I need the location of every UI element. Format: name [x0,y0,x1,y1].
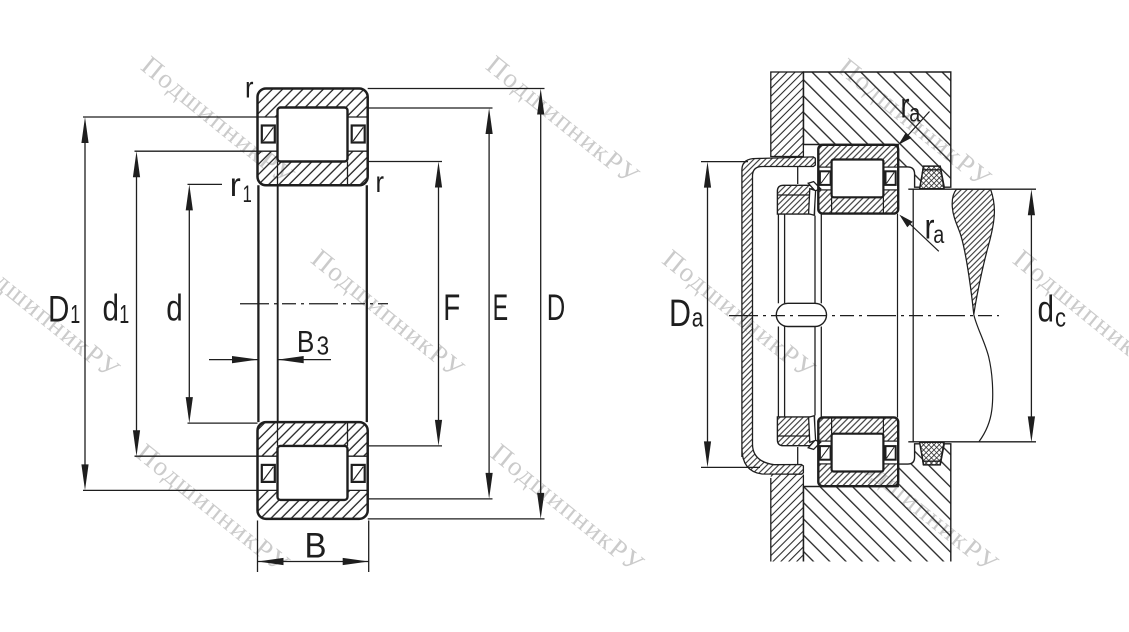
svg-text:d: d [1038,289,1055,330]
svg-text:E: E [493,287,509,328]
svg-text:F: F [443,287,460,328]
svg-text:a: a [692,303,704,333]
svg-text:3: 3 [317,331,330,361]
svg-text:B: B [297,324,315,359]
svg-text:1: 1 [70,299,80,329]
svg-text:a: a [933,221,944,249]
svg-text:d: d [103,288,120,329]
svg-text:a: a [909,100,920,128]
svg-text:r: r [230,166,241,203]
svg-text:D: D [48,288,69,329]
svg-text:r: r [376,166,385,199]
svg-text:B: B [305,527,327,566]
svg-text:d: d [166,288,183,329]
svg-text:r: r [245,72,254,105]
svg-text:1: 1 [243,181,252,208]
svg-text:1: 1 [119,299,129,329]
svg-text:D: D [547,287,566,328]
svg-text:c: c [1055,303,1066,333]
svg-text:D: D [669,293,691,335]
